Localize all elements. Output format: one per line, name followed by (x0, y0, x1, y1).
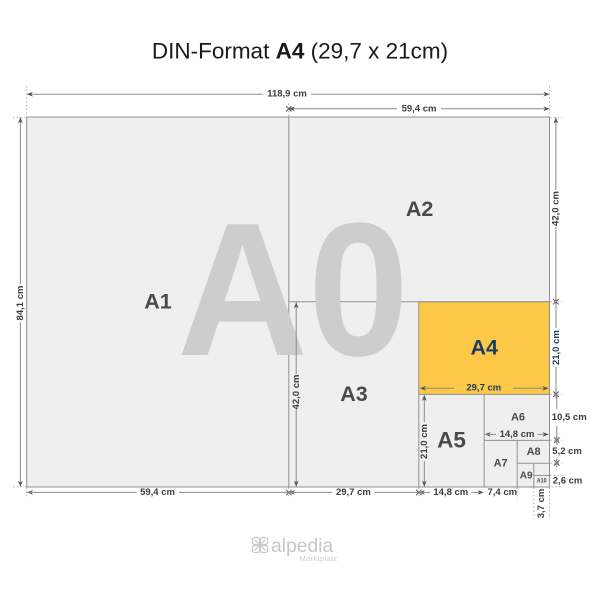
svg-text:A3: A3 (340, 382, 368, 406)
svg-text:A7: A7 (494, 458, 508, 470)
svg-text:A8: A8 (527, 446, 541, 458)
svg-text:3,7 cm: 3,7 cm (536, 489, 547, 519)
svg-text:7,4 cm: 7,4 cm (488, 487, 518, 498)
svg-text:14,8 cm: 14,8 cm (433, 487, 468, 498)
svg-text:21,0 cm: 21,0 cm (551, 330, 562, 365)
svg-text:DIN-Format A4 (29,7 x 21cm): DIN-Format A4 (29,7 x 21cm) (152, 39, 448, 64)
svg-text:Marktplatz: Marktplatz (299, 554, 337, 563)
svg-text:59,4 cm: 59,4 cm (140, 487, 175, 498)
svg-text:29,7 cm: 29,7 cm (336, 487, 371, 498)
svg-text:21,0 cm: 21,0 cm (419, 424, 430, 459)
svg-text:2,6 cm: 2,6 cm (553, 475, 583, 486)
svg-text:84,1 cm: 84,1 cm (15, 286, 26, 321)
svg-text:42,0 cm: 42,0 cm (551, 191, 562, 226)
svg-text:A4: A4 (470, 336, 498, 360)
svg-text:A9: A9 (520, 470, 533, 481)
svg-text:A10: A10 (537, 478, 547, 485)
svg-text:A0: A0 (177, 184, 409, 396)
svg-text:42,0 cm: 42,0 cm (291, 375, 302, 410)
svg-text:59,4 cm: 59,4 cm (402, 103, 437, 114)
svg-text:14,8 cm: 14,8 cm (500, 429, 535, 440)
svg-text:A5: A5 (437, 427, 466, 452)
svg-text:118,9 cm: 118,9 cm (267, 89, 307, 100)
svg-text:A2: A2 (406, 197, 434, 221)
svg-text:5,2 cm: 5,2 cm (552, 446, 582, 457)
svg-text:29,7 cm: 29,7 cm (466, 383, 501, 394)
svg-text:10,5 cm: 10,5 cm (552, 412, 587, 423)
svg-text:A6: A6 (511, 412, 525, 424)
svg-text:A1: A1 (144, 289, 172, 313)
